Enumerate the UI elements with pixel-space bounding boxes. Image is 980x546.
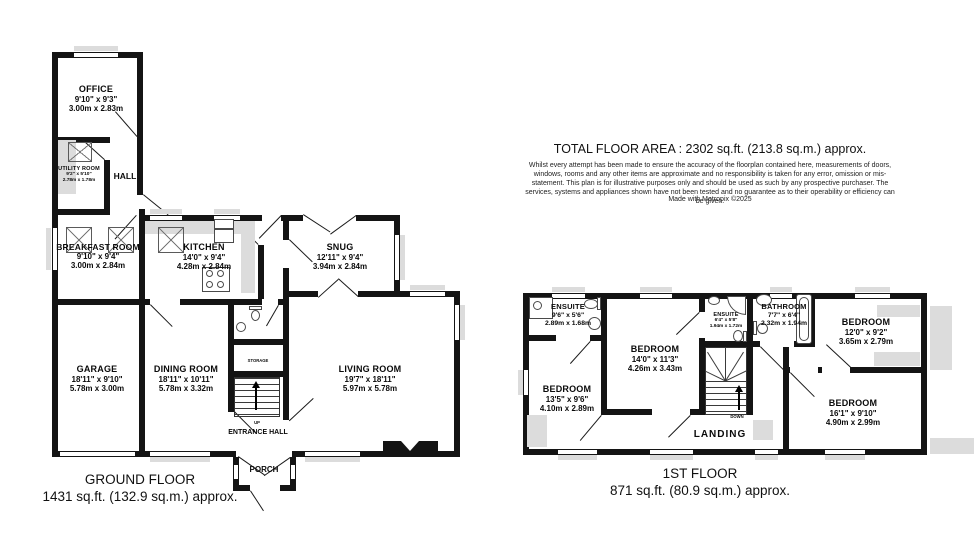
french-door-chevron bbox=[330, 215, 357, 235]
room-label-bedroom2: BEDROOM 13'5" x 9'6" 4.10m x 2.89m bbox=[517, 384, 617, 413]
window-sill bbox=[150, 209, 182, 214]
fridge-icon bbox=[214, 229, 234, 243]
window-sill bbox=[46, 228, 51, 270]
wall bbox=[356, 215, 394, 221]
wall bbox=[454, 340, 460, 457]
wall bbox=[52, 209, 104, 215]
sink-icon bbox=[708, 296, 720, 305]
wall bbox=[52, 299, 150, 305]
door-swing bbox=[790, 372, 815, 397]
wall bbox=[258, 245, 264, 299]
wall bbox=[865, 449, 927, 455]
window-sill bbox=[305, 457, 360, 462]
room-label-breakfast: BREAKFAST ROOM 9'10" x 9'4" 3.00m x 2.84… bbox=[52, 242, 144, 271]
door-swing bbox=[289, 398, 314, 421]
exterior-shading bbox=[930, 438, 974, 454]
wall bbox=[358, 291, 394, 297]
window-sill bbox=[650, 455, 693, 460]
room-label-bathroom: BATHROOM 7'7" x 6'4" 2.32m x 1.94m bbox=[753, 303, 815, 328]
window-sill bbox=[825, 455, 865, 460]
window-sill bbox=[640, 287, 672, 292]
room-label-entrance-hall: ENTRANCE HALL bbox=[214, 429, 302, 436]
french-door-chevron bbox=[318, 279, 339, 298]
wall bbox=[597, 449, 650, 455]
ground-floor-title: GROUND FLOOR 1431 sq.ft. (132.9 sq.m.) a… bbox=[35, 472, 245, 506]
room-label-living: LIVING ROOM 19'7" x 18'11" 5.97m x 5.78m bbox=[322, 364, 418, 393]
room-label-bedroom3: BEDROOM 12'0" x 9'2" 3.65m x 2.79m bbox=[815, 317, 917, 346]
wall bbox=[52, 451, 60, 457]
wall bbox=[921, 293, 927, 455]
door-swing bbox=[676, 312, 700, 335]
sink-icon bbox=[236, 322, 246, 332]
wall bbox=[234, 339, 283, 345]
wall bbox=[747, 347, 753, 415]
window-sill bbox=[214, 209, 240, 214]
window bbox=[855, 293, 890, 299]
stairs-down-label: DOWN bbox=[711, 414, 763, 419]
wardrobe bbox=[877, 305, 920, 317]
room-label-bedroom4: BEDROOM 16'1" x 9'10" 4.90m x 2.99m bbox=[792, 398, 914, 427]
wall bbox=[180, 299, 228, 305]
room-label-landing: LANDING bbox=[660, 429, 780, 440]
wall bbox=[783, 373, 789, 455]
wardrobe bbox=[874, 352, 920, 366]
room-label-porch: PORCH bbox=[238, 465, 290, 474]
window bbox=[552, 293, 585, 299]
total-floor-area: TOTAL FLOOR AREA : 2302 sq.ft. (213.8 sq… bbox=[510, 142, 910, 156]
room-label-storage: STORAGE bbox=[238, 358, 278, 363]
room-label-dining: DINING ROOM 18'11" x 10'11" 5.78m x 3.32… bbox=[140, 364, 232, 393]
door-swing bbox=[115, 111, 138, 137]
window-sill bbox=[755, 455, 778, 460]
window-sill bbox=[770, 287, 792, 292]
wall bbox=[290, 457, 296, 465]
window-sill bbox=[552, 287, 585, 292]
window-sill bbox=[855, 287, 890, 292]
window bbox=[394, 235, 400, 280]
room-label-ensuite1: ENSUITE 9'6" x 5'6" 2.89m x 1.68m bbox=[531, 303, 605, 328]
window-sill bbox=[410, 285, 445, 290]
exterior-shading bbox=[930, 306, 952, 370]
french-door-chevron bbox=[338, 278, 359, 297]
wall bbox=[400, 291, 410, 297]
stair-direction-arrow bbox=[738, 388, 740, 410]
window-sill bbox=[74, 46, 118, 51]
wall bbox=[850, 367, 921, 373]
stair-winders bbox=[705, 347, 747, 381]
room-label-bedroom1: BEDROOM 14'0" x 11'3" 4.26m x 3.43m bbox=[606, 344, 704, 373]
wall bbox=[699, 293, 705, 312]
garage-door bbox=[60, 451, 135, 457]
stair-direction-arrow bbox=[255, 384, 257, 410]
wall bbox=[454, 291, 460, 305]
window-sill bbox=[150, 457, 210, 462]
door-swing bbox=[259, 215, 282, 239]
room-label-office: OFFICE 9'10" x 9'3" 3.00m x 2.83m bbox=[54, 84, 138, 113]
french-door-chevron bbox=[303, 214, 331, 233]
wall bbox=[818, 367, 822, 373]
window bbox=[290, 465, 296, 479]
wall bbox=[360, 451, 460, 457]
door-swing bbox=[150, 304, 173, 327]
floorplan-canvas: TOTAL FLOOR AREA : 2302 sq.ft. (213.8 sq… bbox=[0, 0, 980, 546]
room-label-utility: UTILITY ROOM 9'2" x 5'10" 2.78m x 1.78m bbox=[52, 166, 106, 184]
door-swing bbox=[250, 490, 264, 511]
toilet-icon bbox=[733, 330, 743, 342]
room-label-snug: SNUG 12'11" x 9'4" 3.94m x 2.84m bbox=[295, 242, 385, 271]
wall bbox=[693, 449, 755, 455]
wall bbox=[233, 457, 239, 465]
appliance-icon bbox=[68, 142, 92, 162]
hob-burner-icon bbox=[206, 281, 213, 288]
wall bbox=[523, 335, 556, 341]
metropix-credit: Made with Metropix ©2025 bbox=[523, 196, 897, 203]
door-swing bbox=[826, 344, 851, 367]
hob-burner-icon bbox=[217, 281, 224, 288]
window bbox=[74, 52, 118, 58]
wall bbox=[394, 215, 400, 235]
wardrobe bbox=[527, 415, 547, 447]
window bbox=[640, 293, 672, 299]
room-label-ensuite2: ENSUITE 6'4" x 5'8" 1.94m x 1.72m bbox=[703, 312, 749, 330]
room-label-garage: GARAGE 18'11" x 9'10" 5.78m x 3.00m bbox=[55, 364, 139, 393]
toilet-icon bbox=[743, 331, 747, 342]
wall bbox=[135, 451, 150, 457]
wall bbox=[280, 485, 296, 491]
room-label-hall: HALL bbox=[106, 171, 144, 181]
first-floor-title: 1ST FLOOR 871 sq.ft. (80.9 sq.m.) approx… bbox=[595, 466, 805, 500]
toilet-icon bbox=[251, 310, 260, 321]
fridge-icon bbox=[214, 219, 234, 229]
window bbox=[454, 305, 460, 340]
window-sill bbox=[558, 455, 597, 460]
wall bbox=[585, 293, 640, 299]
stairs-up-label: UP bbox=[234, 420, 280, 425]
window-sill bbox=[400, 235, 405, 280]
door-swing bbox=[760, 346, 785, 371]
window bbox=[770, 293, 792, 299]
window bbox=[410, 291, 445, 297]
wall bbox=[283, 215, 289, 240]
window-sill bbox=[460, 305, 465, 340]
wall bbox=[289, 291, 318, 297]
door-swing bbox=[570, 341, 591, 364]
door-swing bbox=[580, 415, 602, 441]
door-swing bbox=[266, 305, 279, 326]
room-label-kitchen: KITCHEN 14'0" x 9'4" 4.28m x 2.84m bbox=[150, 242, 258, 271]
